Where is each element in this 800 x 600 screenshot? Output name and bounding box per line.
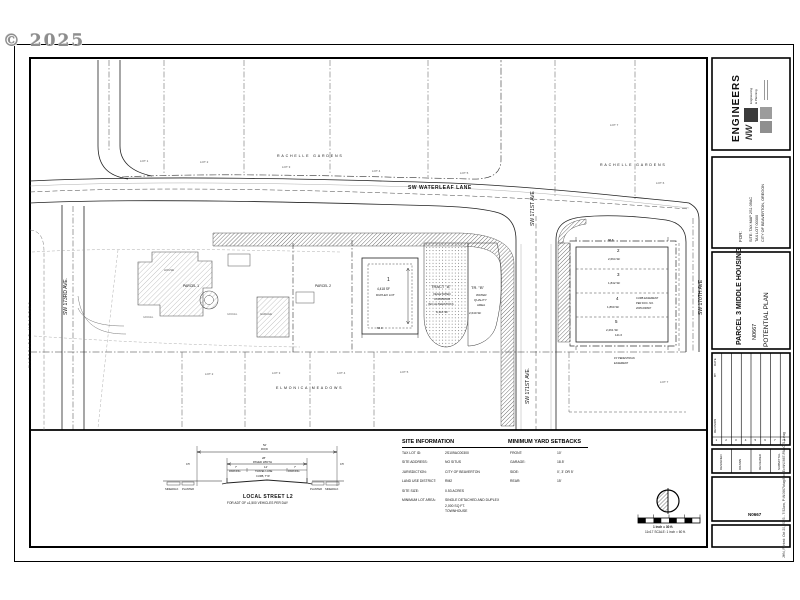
- for-site-line: CITY OF BEAVERTON, OREGON: [762, 184, 766, 242]
- section-sidewalk-label: SIDEWALK: [325, 489, 338, 492]
- logo-square-gray: [760, 107, 772, 119]
- plan-linework: [0, 0, 800, 600]
- signoff-label-reviewed: REVIEWED: [759, 454, 762, 470]
- plan-sheet: © 2025 RACHELLE GARDENS RACHELLE GARDENS…: [0, 0, 800, 600]
- company-tagline: & Planning: [755, 89, 758, 104]
- setback-label: GARAGE:: [510, 461, 525, 464]
- revision-header-by: BY: [714, 373, 717, 377]
- tract-b-line: AREA: [477, 304, 485, 307]
- site-info-label: LAND USE DISTRICT:: [402, 480, 436, 483]
- tract-b-line: WATER: [476, 294, 487, 297]
- site-info-heading: SITE INFORMATION: [402, 440, 510, 448]
- adjacent-lot-label: LOT 4: [372, 170, 380, 173]
- adjacent-lot-label: LOT 2: [200, 161, 208, 164]
- setbacks-heading: MINIMUM YARD SETBACKS: [508, 440, 588, 448]
- subdivision-label-waterleaf-meadows: WATERLEAF MEADOWS: [29, 301, 32, 368]
- dimension-text: 141.6: [615, 334, 622, 337]
- revision-number: 1: [716, 439, 718, 442]
- tract-b-name: TR. "B": [471, 286, 484, 290]
- setback-label: FRONT:: [510, 452, 522, 455]
- tract-a-name: TRACT "A": [431, 285, 451, 289]
- adjacent-lot-label: LOT 5: [400, 371, 408, 374]
- lot-1-number: 1: [387, 278, 390, 283]
- signoff-label-drawn: DRAWN: [739, 459, 742, 470]
- section-dim: 14': [264, 466, 268, 469]
- setback-value: 10': [557, 452, 561, 455]
- lot-5-number: 5: [615, 320, 618, 325]
- street-label-171st-top: SW 171ST AVE: [531, 191, 536, 226]
- address-fine-print: [767, 80, 768, 100]
- site-info-value: CITY OF BEAVERTON: [445, 471, 480, 474]
- ped-easement-note: EASEMENT: [614, 363, 628, 366]
- lot-4-number: 4: [616, 297, 619, 302]
- street-label-171st-bottom: SW 171ST AVE.: [526, 368, 531, 404]
- lot-5-area: 2,261 SF: [606, 329, 618, 332]
- lot-1-area: 4,418 SF: [377, 288, 390, 291]
- revision-header-desc: REVISION: [714, 419, 717, 433]
- revision-number: 3: [735, 439, 737, 442]
- for-site-line: SITE: TAX MAP 2S1 09AC: [750, 197, 754, 242]
- parcel-2-label: PARCEL 2: [315, 285, 331, 288]
- section-planter-label: PLANTER: [310, 489, 322, 492]
- dimension-text: 88.8: [608, 239, 613, 242]
- section-dim-label: PAVED WIDTH: [253, 461, 272, 464]
- revision-number: 6: [764, 439, 766, 442]
- company-tagline: Engineering: [750, 88, 753, 104]
- street-label-170th: SW 170TH AVE: [699, 280, 704, 315]
- for-site-line: TAX LOT 00300: [756, 215, 760, 242]
- site-info-value: 2,000 SQ FT.: [445, 505, 465, 508]
- site-info-label: SITE ADDRESS:: [402, 461, 428, 464]
- tract-a-line: VEGETATED: [433, 293, 451, 296]
- address-fine-print: [764, 80, 765, 100]
- lot-2-number: 2: [617, 249, 620, 254]
- signoff-label-submittal: SUBMITTAL: [778, 453, 781, 470]
- parcel-1-label: PARCEL 1: [183, 285, 199, 288]
- tract-b-area: 2,640 SF: [469, 312, 481, 315]
- section-sidewalk-label: SIDEWALK: [165, 489, 178, 492]
- lot-3-area: 1,842 SF: [608, 282, 620, 285]
- for-label: FOR:: [739, 231, 744, 242]
- copyright-watermark: © 2025: [3, 31, 85, 51]
- site-info-label: TAX LOT ID:: [402, 452, 421, 455]
- site-info-value: SINGLE DETACHED AND DUPLEX: [445, 499, 499, 502]
- setback-label: REAR:: [510, 480, 520, 483]
- site-info-value: NO SITUS: [445, 461, 461, 464]
- curb-easement-note: CURB EASEMENT: [636, 298, 658, 301]
- section-dim: 0.5': [340, 464, 344, 467]
- scale-text: 1 inch = 30 ft.: [653, 526, 673, 529]
- logo-square-dark: [744, 108, 758, 122]
- lot-4-area: 1,860 SF: [607, 306, 619, 309]
- existing-garage-label: GARAGE: [260, 313, 272, 316]
- setback-value: 0', 3' OR 5': [557, 471, 573, 474]
- setback-value: 15': [557, 480, 561, 483]
- project-number: N0667: [753, 324, 759, 340]
- setback-value: 18.5': [557, 461, 564, 464]
- sheet-title: POTENTIAL PLAN: [764, 292, 771, 347]
- plot-stamp: JHN, Printed: Oct 20, 2023 - 7:52am, P:\…: [783, 432, 786, 558]
- site-info-value: TOWNHOUSE: [445, 510, 467, 513]
- adjacent-lot-label: LOT 4: [337, 372, 345, 375]
- existing-house-label: HOUSE: [164, 269, 174, 272]
- adjacent-lot-label: LOT 6: [656, 182, 664, 185]
- subdivision-label-rachelle-right: RACHELLE GARDENS: [600, 164, 667, 168]
- curb-easement-note: 2005-090667: [636, 308, 651, 311]
- dimension-text: 84.0: [377, 327, 382, 330]
- adjacent-lot-label: LOT 2: [205, 373, 213, 376]
- adjacent-lot-label: LOT 1: [140, 160, 148, 163]
- job-number: N0667: [748, 513, 761, 518]
- adjacent-lot-label: LOT 5: [460, 172, 468, 175]
- revision-header-date: DATE: [714, 358, 717, 366]
- logo-square-gray: [760, 121, 772, 133]
- scale-text-alt: 11x17 SCALE: 1 inch = 60 ft.: [645, 531, 686, 534]
- site-info-label: MINIMUM LOT AREA:: [402, 499, 436, 502]
- adjacent-lot-label: LOT 3: [272, 372, 280, 375]
- section-dim-label: PARKING: [288, 471, 299, 474]
- section-dim-label: PARKING: [229, 471, 240, 474]
- site-info-value: 0.53 ACRES: [445, 490, 464, 493]
- setback-label: SIDE:: [510, 471, 519, 474]
- company-logo-nw: NW: [745, 125, 754, 140]
- section-subtitle: FOR ADT OF ≤1,500 VEHICLES PER DAY: [227, 502, 288, 505]
- street-label-waterleaf-lane: SW WATERLEAF LANE: [408, 186, 472, 191]
- signoff-label-designed: DESIGNED: [720, 454, 723, 470]
- section-dim: 7': [294, 466, 296, 469]
- subdivision-label-rachelle-left: RACHELLE GARDENS: [277, 155, 344, 159]
- section-dim-label: ROW: [261, 448, 268, 451]
- lot-2-area: 2,664 SF: [608, 258, 620, 261]
- project-title: PARCEL 3 MIDDLE HOUSING: [736, 248, 743, 345]
- section-dim: 7': [235, 466, 237, 469]
- subdivision-label-elmonica: ELMONICA MEADOWS: [276, 387, 343, 391]
- adjacent-lot-label: LOT 3: [282, 166, 290, 169]
- site-info-value: 2S109AC00300: [445, 452, 469, 455]
- existing-gravel-label: GRAVEL: [227, 314, 237, 317]
- section-dim: 28': [262, 457, 266, 460]
- revision-number: 2: [725, 439, 727, 442]
- existing-gravel-label: GRAVEL: [143, 317, 153, 320]
- section-planter-label: PLANTER: [182, 489, 194, 492]
- curb-easement-note: PER DOC. NO.: [636, 303, 654, 306]
- adjacent-lot-label: LOT 7: [610, 124, 618, 127]
- revision-number: 7: [774, 439, 776, 442]
- section-dim-label: TRAVEL LANE: [255, 471, 272, 474]
- tract-a-line: CORRIDOR: [434, 298, 450, 301]
- revision-number: 4: [745, 439, 747, 442]
- company-name: ENGINEERS: [732, 74, 742, 142]
- site-info-value: RM2: [445, 480, 452, 483]
- adjacent-lot-label: LOT 7: [660, 381, 668, 384]
- section-title: LOCAL STREET L2: [243, 495, 293, 500]
- section-dim: 0.5': [186, 464, 190, 467]
- lot-1-note: DUPLEX LOT: [376, 294, 395, 297]
- lot-3-number: 3: [617, 273, 620, 278]
- site-info-label: SITE SIZE:: [402, 490, 419, 493]
- revision-number: 5: [755, 439, 757, 442]
- street-label-173rd: SW 173RD AVE.: [64, 278, 69, 315]
- tract-a-line: (NO ALTERATION): [428, 303, 454, 306]
- ped-easement-note: 15' PEDESTRIAN: [614, 358, 635, 361]
- section-curb-label: CURB, TYP.: [256, 476, 270, 479]
- tract-b-line: QUALITY: [474, 299, 487, 302]
- tract-a-area: 9,110 SF: [436, 311, 448, 314]
- site-info-label: JURISDICTION:: [402, 471, 427, 474]
